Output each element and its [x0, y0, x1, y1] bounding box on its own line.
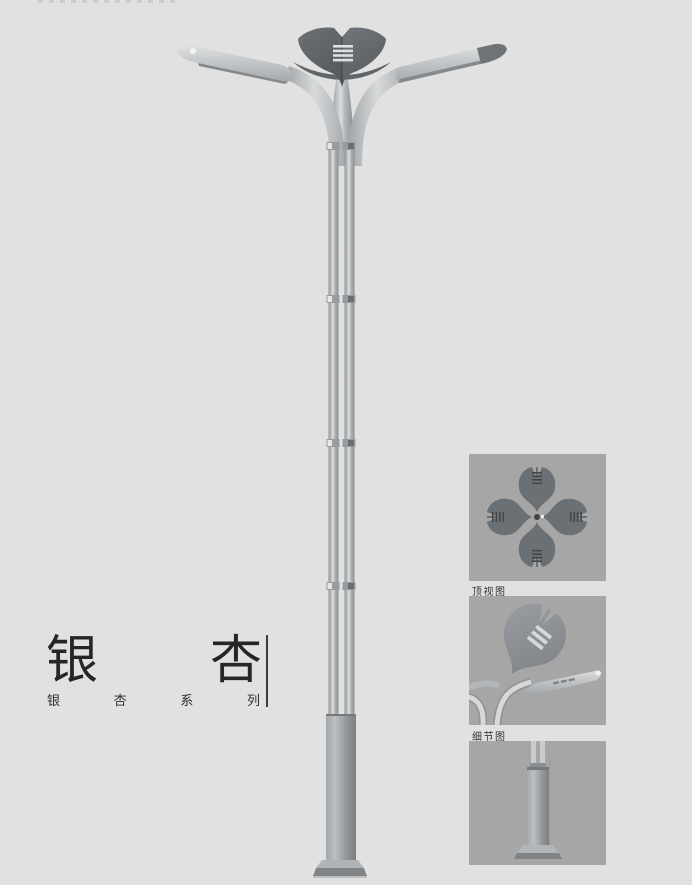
lamp-pole	[327, 142, 356, 718]
top-view-illustration	[469, 454, 606, 581]
series-char: 列	[247, 690, 260, 709]
close-up-illustration	[469, 596, 606, 725]
top-view-center	[534, 514, 540, 520]
lamp-head-left	[177, 45, 291, 84]
close-up-ginkgo-leaf	[485, 596, 576, 690]
lamp-head-right	[396, 44, 507, 83]
series-char: 系	[180, 690, 193, 709]
top-view-leaf-east	[542, 499, 587, 536]
pole-joint-band	[327, 295, 356, 303]
base-twin-poles	[530, 741, 546, 769]
detail-panel-close-up	[469, 596, 606, 725]
pole-joint-band	[327, 439, 356, 447]
product-title-main: 银 杏	[46, 632, 262, 690]
series-char: 银	[47, 690, 60, 709]
title-divider-line	[266, 635, 268, 707]
top-view-leaf-south	[519, 522, 556, 567]
product-title: 银 杏	[46, 632, 262, 690]
base-column	[527, 759, 551, 847]
title-char: 杏	[210, 632, 262, 690]
lamp-base	[313, 714, 367, 878]
catalog-page: 银 杏 银 杏 系 列	[0, 0, 692, 885]
top-view-leaf-west	[487, 499, 532, 536]
pole-joint-band	[327, 582, 356, 590]
series-char: 杏	[114, 690, 127, 709]
close-up-arms	[469, 682, 531, 725]
top-view-highlight	[541, 515, 544, 518]
base-plate	[514, 845, 562, 859]
detail-panel-base	[469, 741, 606, 865]
base-illustration	[469, 741, 606, 865]
product-series-label: 银 杏 系 列	[47, 690, 260, 709]
top-view-leaf-north	[519, 467, 556, 512]
close-up-lamp-head	[525, 671, 601, 696]
detail-panel-top-view	[469, 454, 606, 581]
title-char: 银	[46, 632, 98, 690]
